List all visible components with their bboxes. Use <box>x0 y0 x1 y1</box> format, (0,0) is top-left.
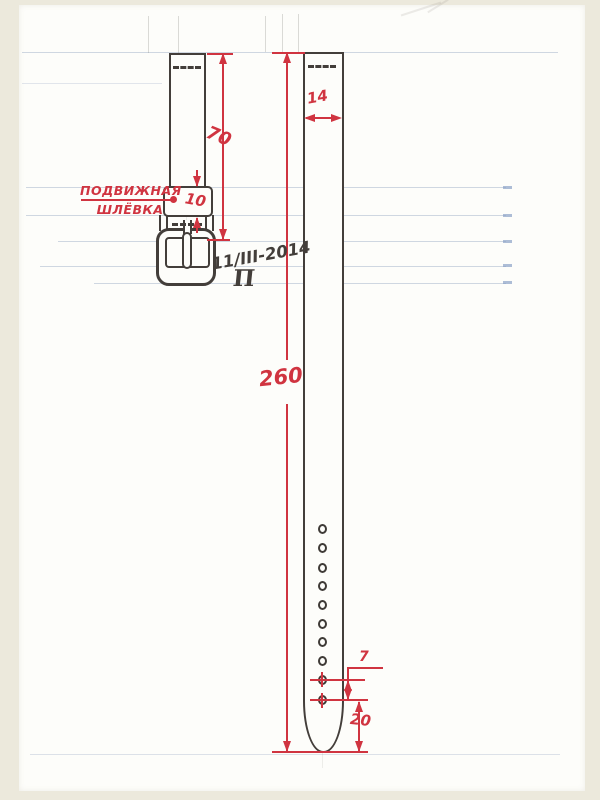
ruled-line-end-mark <box>503 281 512 284</box>
stitch-line <box>308 65 336 68</box>
dimension-arrow <box>355 741 363 752</box>
dimension-arrow <box>304 114 315 122</box>
stitch-line <box>173 66 201 69</box>
dim-strap-width: 14 <box>306 88 329 106</box>
dimension-arrow <box>283 52 291 63</box>
hole-center-tick <box>321 672 323 687</box>
dimension-arrow <box>193 217 201 228</box>
ruled-line <box>40 266 506 267</box>
punch-hole <box>318 637 327 647</box>
leader-line <box>81 199 172 201</box>
ruled-line-end-mark <box>503 186 512 189</box>
dimension-arrow <box>219 53 227 64</box>
keeper-label-line2: ШЛЁВКА <box>95 202 165 217</box>
dimension-arrow <box>283 741 291 752</box>
punch-hole <box>318 543 327 553</box>
ruled-line-end-mark <box>503 214 512 217</box>
dimension-arrow <box>331 114 342 122</box>
hole-center-tick <box>321 693 323 708</box>
dim-tip-to-last-hole: 20 <box>349 712 371 729</box>
paper-sheet <box>19 5 585 791</box>
dimension-line <box>286 404 288 751</box>
punch-hole <box>318 524 327 534</box>
ruled-line <box>30 754 560 755</box>
buckle-strap-outline <box>169 53 206 187</box>
pencil-guide-line <box>282 14 283 52</box>
punch-hole <box>318 656 327 666</box>
dim-keeper-height: 10 <box>184 191 207 209</box>
punch-hole <box>318 600 327 610</box>
dim-hole-pitch: 7 <box>359 650 369 664</box>
pencil-guide-line <box>298 14 299 52</box>
leader-line <box>347 667 383 669</box>
ruled-line-end-mark <box>503 240 512 243</box>
pencil-guide-line <box>265 16 266 52</box>
keeper-label-line1: ПОДВИЖНАЯ <box>80 183 170 198</box>
ruled-line <box>22 83 162 84</box>
dimension-line <box>286 54 288 360</box>
dimension-arrow <box>344 689 352 700</box>
ruled-line <box>94 283 506 284</box>
strap-outline <box>303 52 344 753</box>
pencil-guide-line <box>178 16 179 53</box>
ruled-line-end-mark <box>503 264 512 267</box>
hole-center-line <box>310 679 365 681</box>
punch-hole <box>318 563 327 573</box>
buckle-prong <box>182 232 192 269</box>
punch-hole <box>318 619 327 629</box>
dimension-arrow <box>193 176 201 187</box>
pencil-guide-line <box>148 16 149 53</box>
scanned-strap-drawing: 70 10 ПОДВИЖНАЯ ШЛЁВКА 11/III-2014 П 14 … <box>0 0 600 800</box>
signature-monogram: П <box>232 267 256 290</box>
dimension-arrow <box>219 229 227 240</box>
dim-strap-length: 260 <box>258 365 304 390</box>
punch-hole <box>318 581 327 591</box>
